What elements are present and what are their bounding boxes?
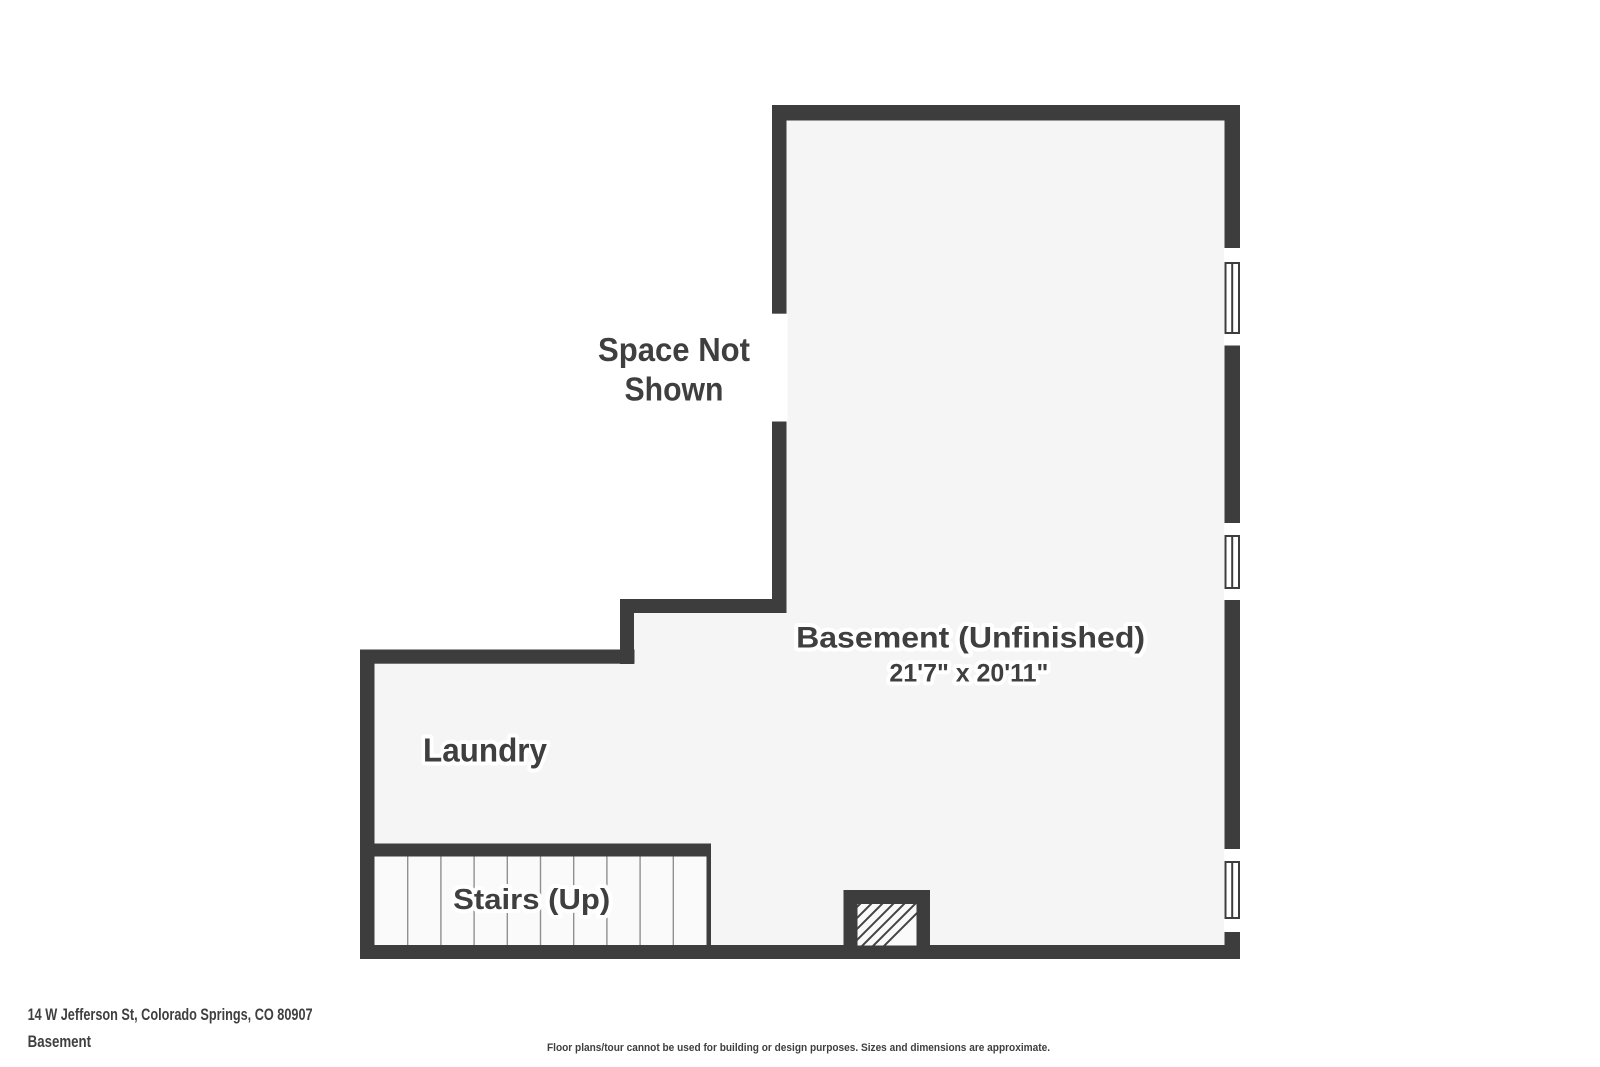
svg-text:21'7" x 20'11": 21'7" x 20'11" [889, 659, 1048, 687]
svg-text:Floor plans/tour cannot be use: Floor plans/tour cannot be used for buil… [547, 1042, 1050, 1054]
svg-text:Basement: Basement [28, 1033, 92, 1051]
svg-text:14 W Jefferson St, Colorado Sp: 14 W Jefferson St, Colorado Springs, CO … [28, 1006, 313, 1024]
svg-text:Stairs (Up): Stairs (Up) [453, 884, 610, 916]
svg-text:Shown: Shown [625, 371, 724, 408]
svg-text:Basement (Unfinished): Basement (Unfinished) [796, 622, 1145, 655]
svg-text:Space Not: Space Not [598, 331, 750, 368]
svg-text:Laundry: Laundry [423, 732, 548, 769]
